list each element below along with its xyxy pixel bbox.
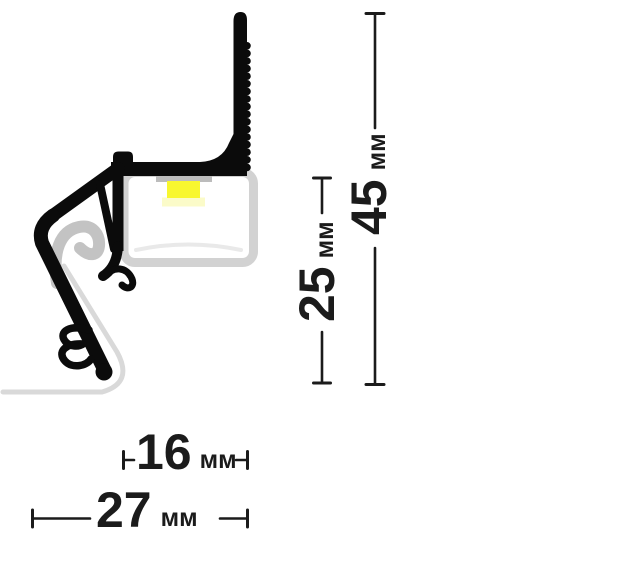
label-channel-width-unit: мм xyxy=(200,446,237,474)
label-inner-height-unit: мм xyxy=(311,221,339,258)
technical-drawing: 45мм 25мм 16мм 27мм xyxy=(0,0,622,565)
flange-teeth xyxy=(240,42,251,171)
label-total-height-unit: мм xyxy=(363,133,391,170)
label-inner-height-value: 25 xyxy=(289,266,345,322)
led-chip xyxy=(167,181,200,198)
flange-lip xyxy=(113,152,133,163)
label-inner-height: 25мм xyxy=(289,221,345,322)
label-total-width: 27мм xyxy=(96,482,198,538)
label-total-width-value: 27 xyxy=(96,482,152,538)
under-channel-hook xyxy=(104,269,133,288)
label-channel-width-value: 16 xyxy=(136,424,192,480)
led-channel xyxy=(124,173,254,263)
label-channel-width: 16мм xyxy=(136,424,237,480)
label-total-height-value: 45 xyxy=(341,179,397,235)
led-profile-cross-section-figure: 45мм 25мм 16мм 27мм xyxy=(0,0,622,565)
led-glow xyxy=(162,198,205,207)
arm-foot xyxy=(96,364,113,381)
label-total-width-unit: мм xyxy=(161,504,198,532)
label-total-height: 45мм xyxy=(341,133,397,235)
